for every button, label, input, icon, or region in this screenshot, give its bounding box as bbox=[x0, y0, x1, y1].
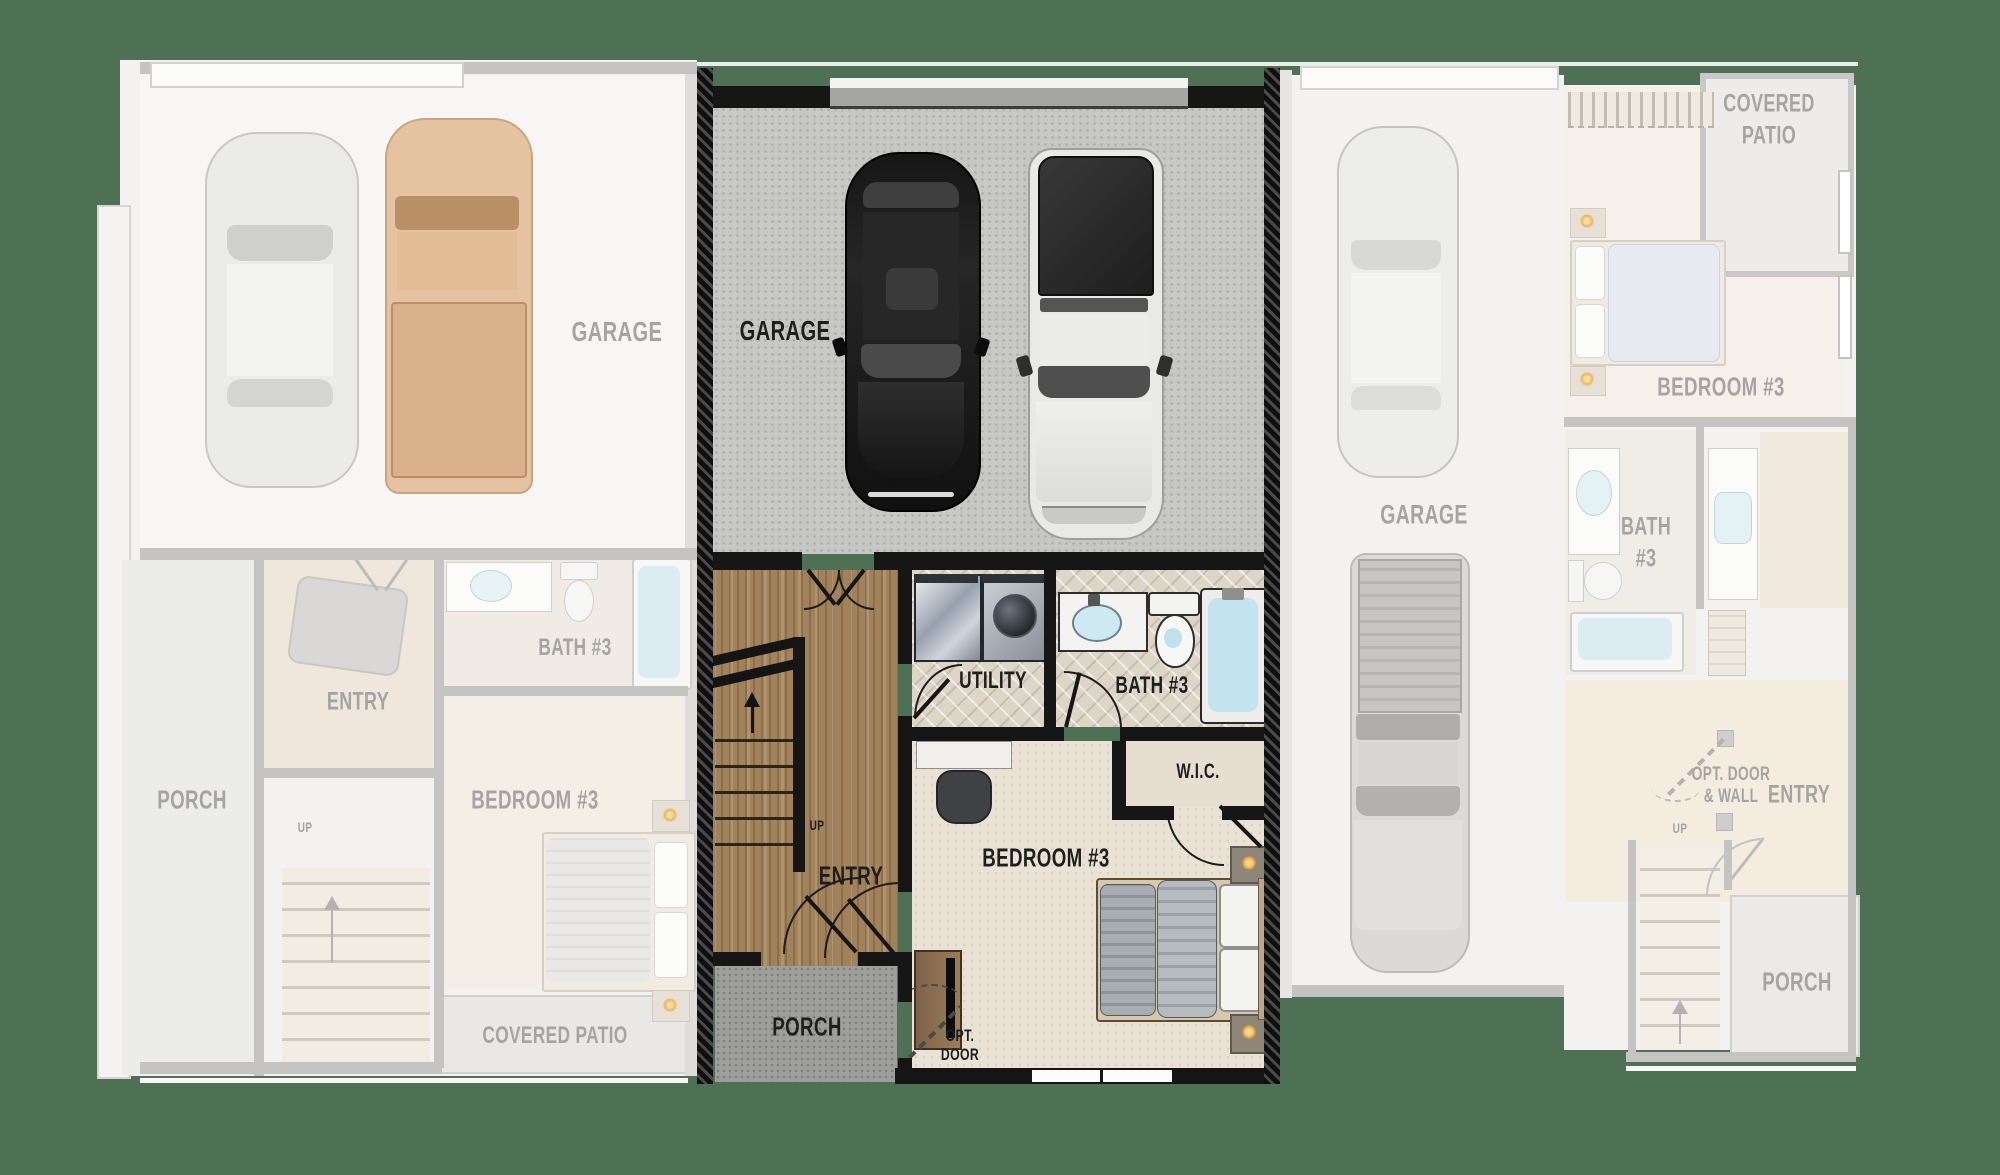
center-bed-pillow bbox=[1219, 884, 1263, 948]
wall bbox=[1186, 86, 1268, 108]
right-bath-label-line1: BATH bbox=[1621, 513, 1671, 542]
wall bbox=[254, 556, 264, 1076]
left-lamp bbox=[663, 998, 677, 1012]
center-car-white-truck-hood bbox=[1036, 402, 1152, 502]
right-bed-pillow bbox=[1575, 304, 1605, 358]
left-bath-toilet-tank bbox=[560, 562, 598, 580]
left-unit-bottom-line bbox=[140, 1078, 688, 1083]
floorplan-canvas: GARAGE BATH #3 ENTRY PORCH BEDROOM #3 UP… bbox=[0, 0, 2000, 1175]
wall bbox=[895, 1068, 1032, 1084]
center-car-white-truck-rear-window bbox=[1040, 298, 1148, 312]
right-car-gray-truck-rear-window bbox=[1356, 714, 1460, 740]
center-bath-sink bbox=[1072, 604, 1122, 642]
right-bath-label-line2: #3 bbox=[1636, 545, 1657, 574]
center-entry-label: ENTRY bbox=[819, 861, 884, 892]
wall bbox=[262, 768, 436, 778]
wall bbox=[434, 556, 444, 772]
right-toilet-bowl bbox=[1584, 562, 1622, 600]
center-car-black-suv-hood bbox=[858, 382, 964, 478]
center-garage-label: GARAGE bbox=[740, 315, 831, 347]
left-covered-patio-label: COVERED PATIO bbox=[482, 1022, 627, 1050]
right-car-gray-truck-roof bbox=[1358, 742, 1458, 784]
right-car-gray-truck-bed bbox=[1358, 559, 1462, 713]
center-bath-faucet bbox=[1088, 594, 1100, 606]
center-car-white-truck-bed-cover bbox=[1038, 156, 1154, 296]
left-porch-label: PORCH bbox=[157, 785, 226, 816]
left-garage-door bbox=[150, 62, 464, 88]
right-bath-sink2 bbox=[1714, 492, 1752, 544]
center-garage-door-backing bbox=[830, 78, 1188, 88]
center-stairs-up-arrow bbox=[744, 692, 760, 707]
wall bbox=[713, 552, 802, 570]
right-car-gray-truck-hood bbox=[1354, 820, 1462, 930]
center-lamp bbox=[1242, 1025, 1256, 1039]
left-stairs-up-arrow-stem bbox=[331, 910, 333, 962]
left-car-truck-bed bbox=[391, 302, 527, 478]
right-car-white-suv-roof bbox=[1351, 273, 1441, 383]
wall bbox=[1120, 727, 1264, 741]
center-toilet-tank bbox=[1148, 592, 1200, 616]
right-bed-pillow bbox=[1575, 246, 1605, 300]
left-entry-label: ENTRY bbox=[327, 688, 389, 717]
wall bbox=[140, 548, 697, 560]
right-bedroom-closet bbox=[1568, 92, 1714, 128]
wall bbox=[1564, 417, 1856, 427]
left-stairs-up-arrow bbox=[324, 896, 340, 910]
center-lamp bbox=[1242, 856, 1256, 870]
wall bbox=[898, 716, 912, 892]
right-opt-door-label-line1: OPT. DOOR bbox=[1692, 764, 1770, 786]
wall bbox=[1848, 425, 1856, 1057]
left-stairs bbox=[282, 868, 430, 1064]
center-tub-faucet bbox=[1222, 588, 1244, 600]
center-right-wall bbox=[1264, 68, 1280, 1084]
center-stairs-up-arrow-stem bbox=[751, 707, 754, 733]
right-lamp bbox=[1580, 372, 1594, 386]
center-desk-chair bbox=[936, 770, 992, 824]
right-covered-patio-label-line1: COVERED bbox=[1723, 90, 1815, 119]
right-stairs-up-arrow-stem bbox=[1679, 1014, 1681, 1044]
center-bath-label: BATH #3 bbox=[1115, 672, 1188, 700]
wall bbox=[1044, 570, 1056, 727]
wall bbox=[1628, 840, 1636, 1052]
right-opt-door-jamb bbox=[1716, 813, 1733, 831]
left-entry-rug bbox=[286, 575, 409, 678]
left-bath-tub-water bbox=[638, 566, 680, 678]
wall bbox=[1112, 806, 1174, 820]
center-utility-label: UTILITY bbox=[959, 667, 1027, 695]
left-bath-sink bbox=[470, 570, 512, 602]
right-bed-blanket bbox=[1608, 244, 1720, 362]
center-car-white-truck-roof bbox=[1040, 314, 1148, 364]
wall bbox=[874, 552, 1264, 570]
left-car-truck-windshield bbox=[395, 196, 519, 230]
left-bed-pillow bbox=[654, 842, 688, 908]
wall bbox=[1724, 840, 1732, 890]
right-bedroom-label: BEDROOM #3 bbox=[1657, 372, 1784, 403]
right-bedroom-window bbox=[1838, 170, 1852, 254]
center-car-black-suv-rear-window bbox=[863, 182, 959, 208]
wall bbox=[1696, 427, 1704, 609]
right-bedroom-window bbox=[1838, 275, 1852, 359]
center-car-white-truck-windshield bbox=[1038, 366, 1150, 398]
left-bed-pillow bbox=[654, 912, 688, 978]
wall bbox=[912, 727, 1064, 741]
left-lamp bbox=[663, 808, 677, 822]
center-washer bbox=[914, 574, 982, 662]
center-stairs bbox=[715, 733, 793, 869]
right-car-gray-truck-windshield bbox=[1356, 786, 1460, 816]
right-linen-closet bbox=[1708, 610, 1746, 676]
wall bbox=[898, 552, 912, 664]
right-garage-door bbox=[1300, 66, 1559, 90]
left-bedroom-label: BEDROOM #3 bbox=[471, 785, 598, 816]
center-desk bbox=[916, 741, 1012, 769]
center-left-wall bbox=[697, 68, 713, 1084]
center-garage-door bbox=[830, 88, 1188, 109]
center-bedroom-label: BEDROOM #3 bbox=[982, 843, 1109, 874]
left-porch-floor bbox=[122, 560, 254, 1075]
left-garage-label: GARAGE bbox=[572, 316, 663, 348]
right-unit-gap-strip bbox=[1280, 70, 1292, 998]
center-washer-controls bbox=[914, 574, 978, 583]
center-bed-blanket bbox=[1157, 880, 1217, 1018]
center-car-black-suv-front-light bbox=[868, 492, 954, 497]
wall bbox=[434, 686, 688, 696]
wall bbox=[1112, 741, 1126, 806]
right-covered-patio-label-line2: PATIO bbox=[1742, 122, 1796, 151]
right-car-white-suv-rear-window bbox=[1351, 386, 1441, 410]
center-up-label: UP bbox=[810, 817, 825, 833]
wall bbox=[793, 637, 805, 872]
left-car-sedan-windshield bbox=[227, 225, 333, 261]
wall bbox=[1172, 1068, 1264, 1084]
left-bed-blanket bbox=[546, 838, 650, 982]
center-dryer-controls bbox=[982, 574, 1044, 583]
wall bbox=[1222, 806, 1264, 820]
right-tub-water bbox=[1578, 618, 1672, 660]
wall bbox=[697, 86, 833, 108]
center-bed-pillow bbox=[1219, 948, 1263, 1012]
wall bbox=[858, 952, 912, 966]
left-car-truck-roof bbox=[397, 232, 517, 290]
right-stairs-up-arrow bbox=[1672, 1000, 1688, 1014]
center-opt-door-label-line2: DOOR bbox=[941, 1045, 979, 1065]
right-porch-label: PORCH bbox=[1762, 967, 1831, 998]
center-bed-blanket bbox=[1100, 884, 1156, 1016]
center-bedroom-window-mullion bbox=[1100, 1068, 1103, 1084]
right-entry-label: ENTRY bbox=[1768, 781, 1830, 810]
right-toilet-tank bbox=[1568, 560, 1584, 602]
center-porch-label: PORCH bbox=[772, 1012, 841, 1043]
wall bbox=[434, 772, 444, 1068]
right-hall-floor bbox=[1760, 432, 1848, 608]
center-car-black-suv-sunroof bbox=[886, 268, 938, 310]
center-tub-water bbox=[1208, 598, 1258, 712]
right-garage-label: GARAGE bbox=[1380, 500, 1467, 531]
right-car-white-suv-windshield bbox=[1351, 240, 1441, 270]
wall bbox=[1292, 985, 1564, 997]
right-unit-bottom-line bbox=[1626, 1066, 1856, 1071]
center-wic-label: W.I.C. bbox=[1176, 760, 1219, 784]
right-lamp bbox=[1580, 214, 1594, 228]
center-toilet-water bbox=[1164, 628, 1182, 648]
wall bbox=[140, 1062, 442, 1074]
center-car-black-suv-windshield bbox=[861, 344, 961, 378]
right-opt-door-label-line2: & WALL bbox=[1704, 786, 1759, 808]
center-car-white-truck-grille bbox=[1042, 506, 1146, 524]
left-bath-label: BATH #3 bbox=[538, 634, 611, 662]
left-up-label: UP bbox=[298, 819, 313, 835]
center-opt-door-label-line1: OPT. bbox=[946, 1026, 975, 1046]
left-car-sedan-rear-window bbox=[227, 379, 333, 407]
left-bath-toilet-bowl bbox=[564, 580, 594, 622]
right-bath-sink bbox=[1576, 470, 1612, 516]
center-dryer-door bbox=[993, 594, 1037, 638]
right-up-label: UP bbox=[1673, 820, 1688, 836]
wall bbox=[1626, 1052, 1856, 1062]
left-car-sedan-roof bbox=[227, 264, 333, 376]
